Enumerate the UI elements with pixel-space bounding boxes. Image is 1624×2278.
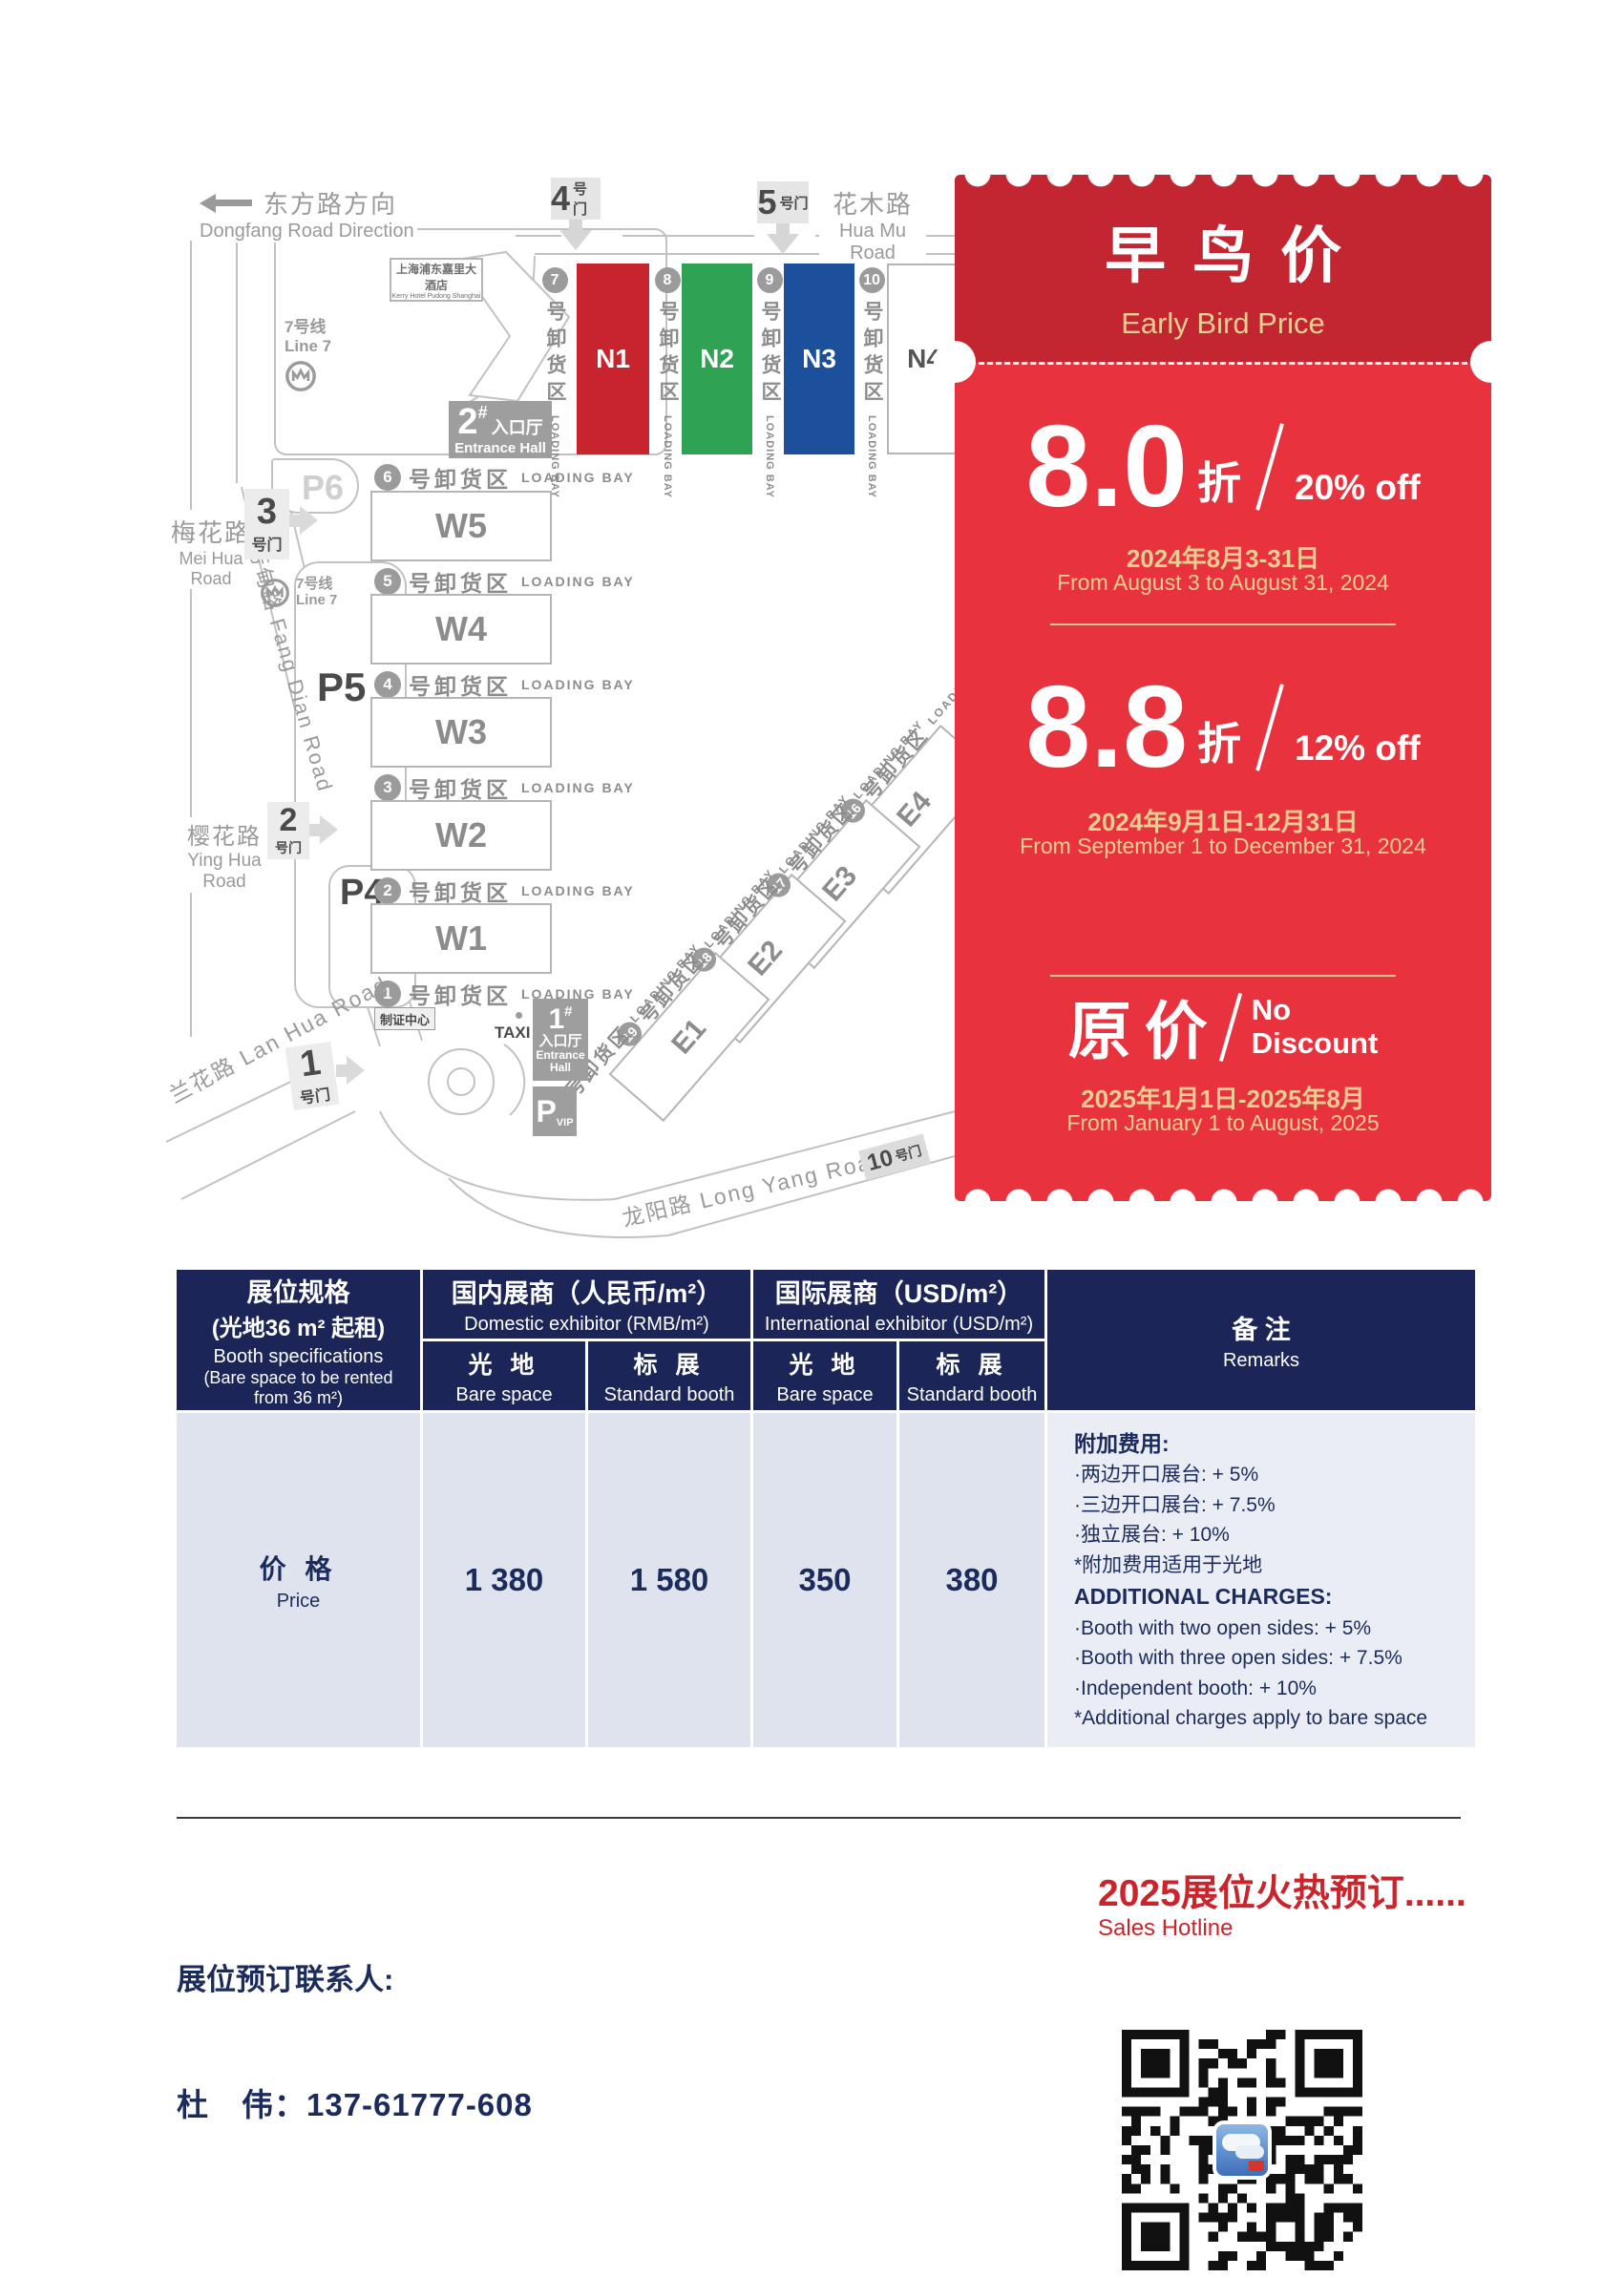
road-name-en: Dongfang Road Direction [200,221,414,243]
ticket-divider-2 [1050,975,1396,977]
badge-cert-center: 制证中心 [374,1007,435,1030]
hall-n3: N3 [784,264,854,454]
early-bird-ticket: 早鸟价 Early Bird Price 8.0 折 20% off 2024年… [955,175,1491,1201]
loading-bay-4: 4 号卸货区 LOADING BAY [374,668,635,701]
parking-p6: P6 [302,468,344,508]
road-name-cn: 东方路方向 [264,185,397,221]
remarks-cell: 附加费用: ·两边开口展台: + 5% ·三边开口展台: + 7.5% ·独立展… [1047,1413,1475,1747]
price-domestic-standard: 1 580 [588,1413,750,1747]
gate-3-arrow-icon [289,506,318,535]
hotline-subtitle: Sales Hotline [1098,1915,1233,1942]
qr-center-logo [1213,2120,1272,2180]
tier-3: 原价 NoDiscount [955,992,1491,1063]
gate-5-arrow-icon [767,223,799,254]
left-arrow-icon [200,194,252,213]
loading-bay-8: 8 号卸货区 LOADING BAY [652,267,683,498]
huamu-road-label: 花木路 Hua Mu Road [819,185,926,264]
tier-1: 8.0 折 20% off [955,421,1491,512]
pricing-table: 展位规格 (光地36 m² 起租) Booth specifications (… [177,1270,1475,1747]
hall-w4: W4 [370,594,552,664]
hotline-title: 2025展位火热预订...... [1098,1864,1466,1917]
flyer-page: 东方路方向 Dongfang Road Direction 4 号门 5 号门 … [0,0,1624,2278]
gate-2-arrow-icon [309,815,338,844]
gate-1: 1 号门 [285,1042,340,1110]
price-international-standard: 380 [899,1413,1044,1747]
meihua-road-label: 梅花路 Mei Hua Road [168,514,254,589]
loading-bay-3: 3 号卸货区 LOADING BAY [374,771,635,804]
yinghua-road-label: 樱花路 Ying Hua Road [168,817,281,893]
hall-n1: N1 [577,264,649,454]
taxi-label: TAXI [495,1023,530,1043]
slash-icon [1255,423,1284,510]
international-standard-header: 标 展 Standard booth [899,1341,1044,1410]
ticket-notch-left [934,341,976,383]
slash-icon [1255,684,1284,770]
flag-icon [1249,2161,1264,2171]
tier-1-date-en: From August 3 to August 31, 2024 [955,570,1491,596]
gate-2: 2 号门 [267,802,309,859]
loading-bay-1: 1 号卸货区 LOADING BAY [374,978,635,1010]
gate-3: 3 号门 [244,489,289,559]
ticket-notch-right [1470,341,1512,383]
line7-upper-label: 7号线 Line 7 [285,313,331,397]
metro-logo-icon [285,360,317,392]
hall-w5: W5 [370,491,552,561]
ticket-divider-1 [1050,623,1396,625]
tier-2-date-en: From September 1 to December 31, 2024 [955,833,1491,859]
loading-bay-2: 2 号卸货区 LOADING BAY [374,875,635,907]
international-group-header: 国际展商（USD/m²） International exhibitor (US… [753,1270,1044,1339]
remarks-header: 备 注 Remarks [1047,1270,1475,1410]
entrance-hall-2: 2 # 入口厅 Entrance Hall [449,401,552,458]
contact-phone: 杜 伟：137-61777-608 [177,2079,533,2125]
ticket-title-cn: 早鸟价 [955,207,1491,295]
hall-w2: W2 [370,800,552,871]
ticket-perforation [970,362,1476,365]
parking-vip: P VIP [533,1086,577,1136]
price-international-bare: 350 [753,1413,896,1747]
price-domestic-bare: 1 380 [423,1413,585,1747]
taxi-dot-icon [516,1012,522,1019]
tier-2: 8.8 折 12% off [955,682,1491,772]
ticket-title-en: Early Bird Price [955,306,1491,341]
domestic-group-header: 国内展商（人民币/m²） Domestic exhibitor (RMB/m²) [423,1270,750,1339]
international-bare-header: 光 地 Bare space [753,1341,896,1410]
loading-bay-6: 6 号卸货区 LOADING BAY [374,461,635,494]
hall-w1: W1 [370,903,552,974]
gate-1-arrow-icon [336,1056,365,1085]
slash-icon [1219,993,1242,1062]
domestic-bare-header: 光 地 Bare space [423,1341,585,1410]
loading-bay-10: 10 号卸货区 LOADING BAY [856,267,887,498]
footer-divider [177,1817,1461,1819]
entrance-hall-1: 1 # 入口厅 Entrance Hall [533,999,588,1081]
col-booth-spec-header: 展位规格 (光地36 m² 起租) Booth specifications (… [177,1270,420,1410]
domestic-standard-header: 标 展 Standard booth [588,1341,750,1410]
qr-code [1122,2030,1362,2270]
ticket-scallop-top [958,174,1488,188]
hall-n2: N2 [682,264,752,454]
contact-label: 展位预订联系人: [177,1955,393,1998]
gate-4-arrow-icon [559,220,592,250]
loading-bay-9: 9 号卸货区 LOADING BAY [754,267,785,498]
gate-5: 5 号门 [757,181,809,223]
tier-3-date-en: From January 1 to August, 2025 [955,1110,1491,1136]
parking-p5: P5 [317,664,366,710]
dongfang-road-label: 东方路方向 Dongfang Road Direction [197,185,417,243]
kerry-hotel-box: 上海浦东嘉里大酒店 Kerry Hotel Pudong Shanghai [390,258,483,302]
ticket-scallop-bottom [958,1188,1488,1202]
price-row-label: 价 格 Price [177,1413,420,1747]
loading-bay-5: 5 号卸货区 LOADING BAY [374,565,635,598]
gate-4: 4 号门 [551,178,601,220]
hall-w3: W3 [370,697,552,768]
ticket-header: 早鸟价 Early Bird Price [955,175,1491,362]
